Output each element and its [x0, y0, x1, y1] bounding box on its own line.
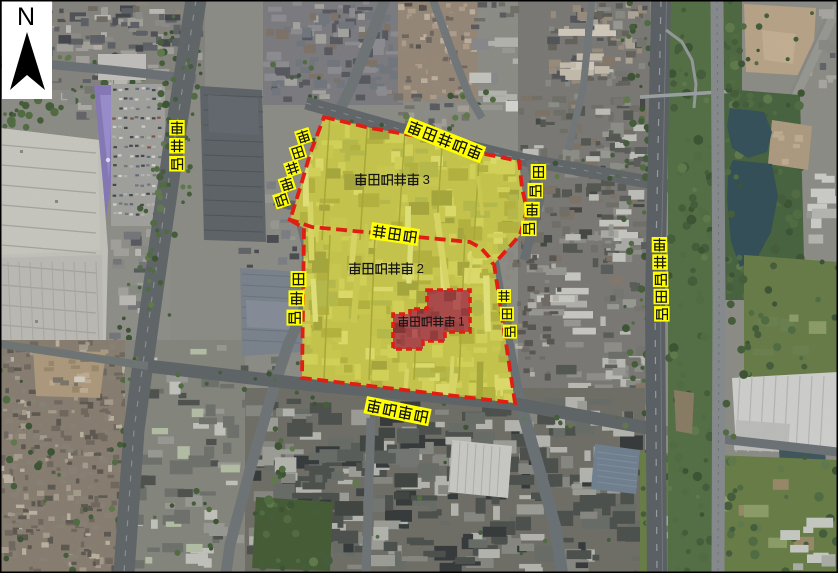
svg-text:3: 3 [423, 172, 430, 187]
svg-text:1: 1 [458, 316, 464, 329]
svg-text:2: 2 [417, 261, 424, 276]
svg-text:N: N [17, 3, 35, 31]
